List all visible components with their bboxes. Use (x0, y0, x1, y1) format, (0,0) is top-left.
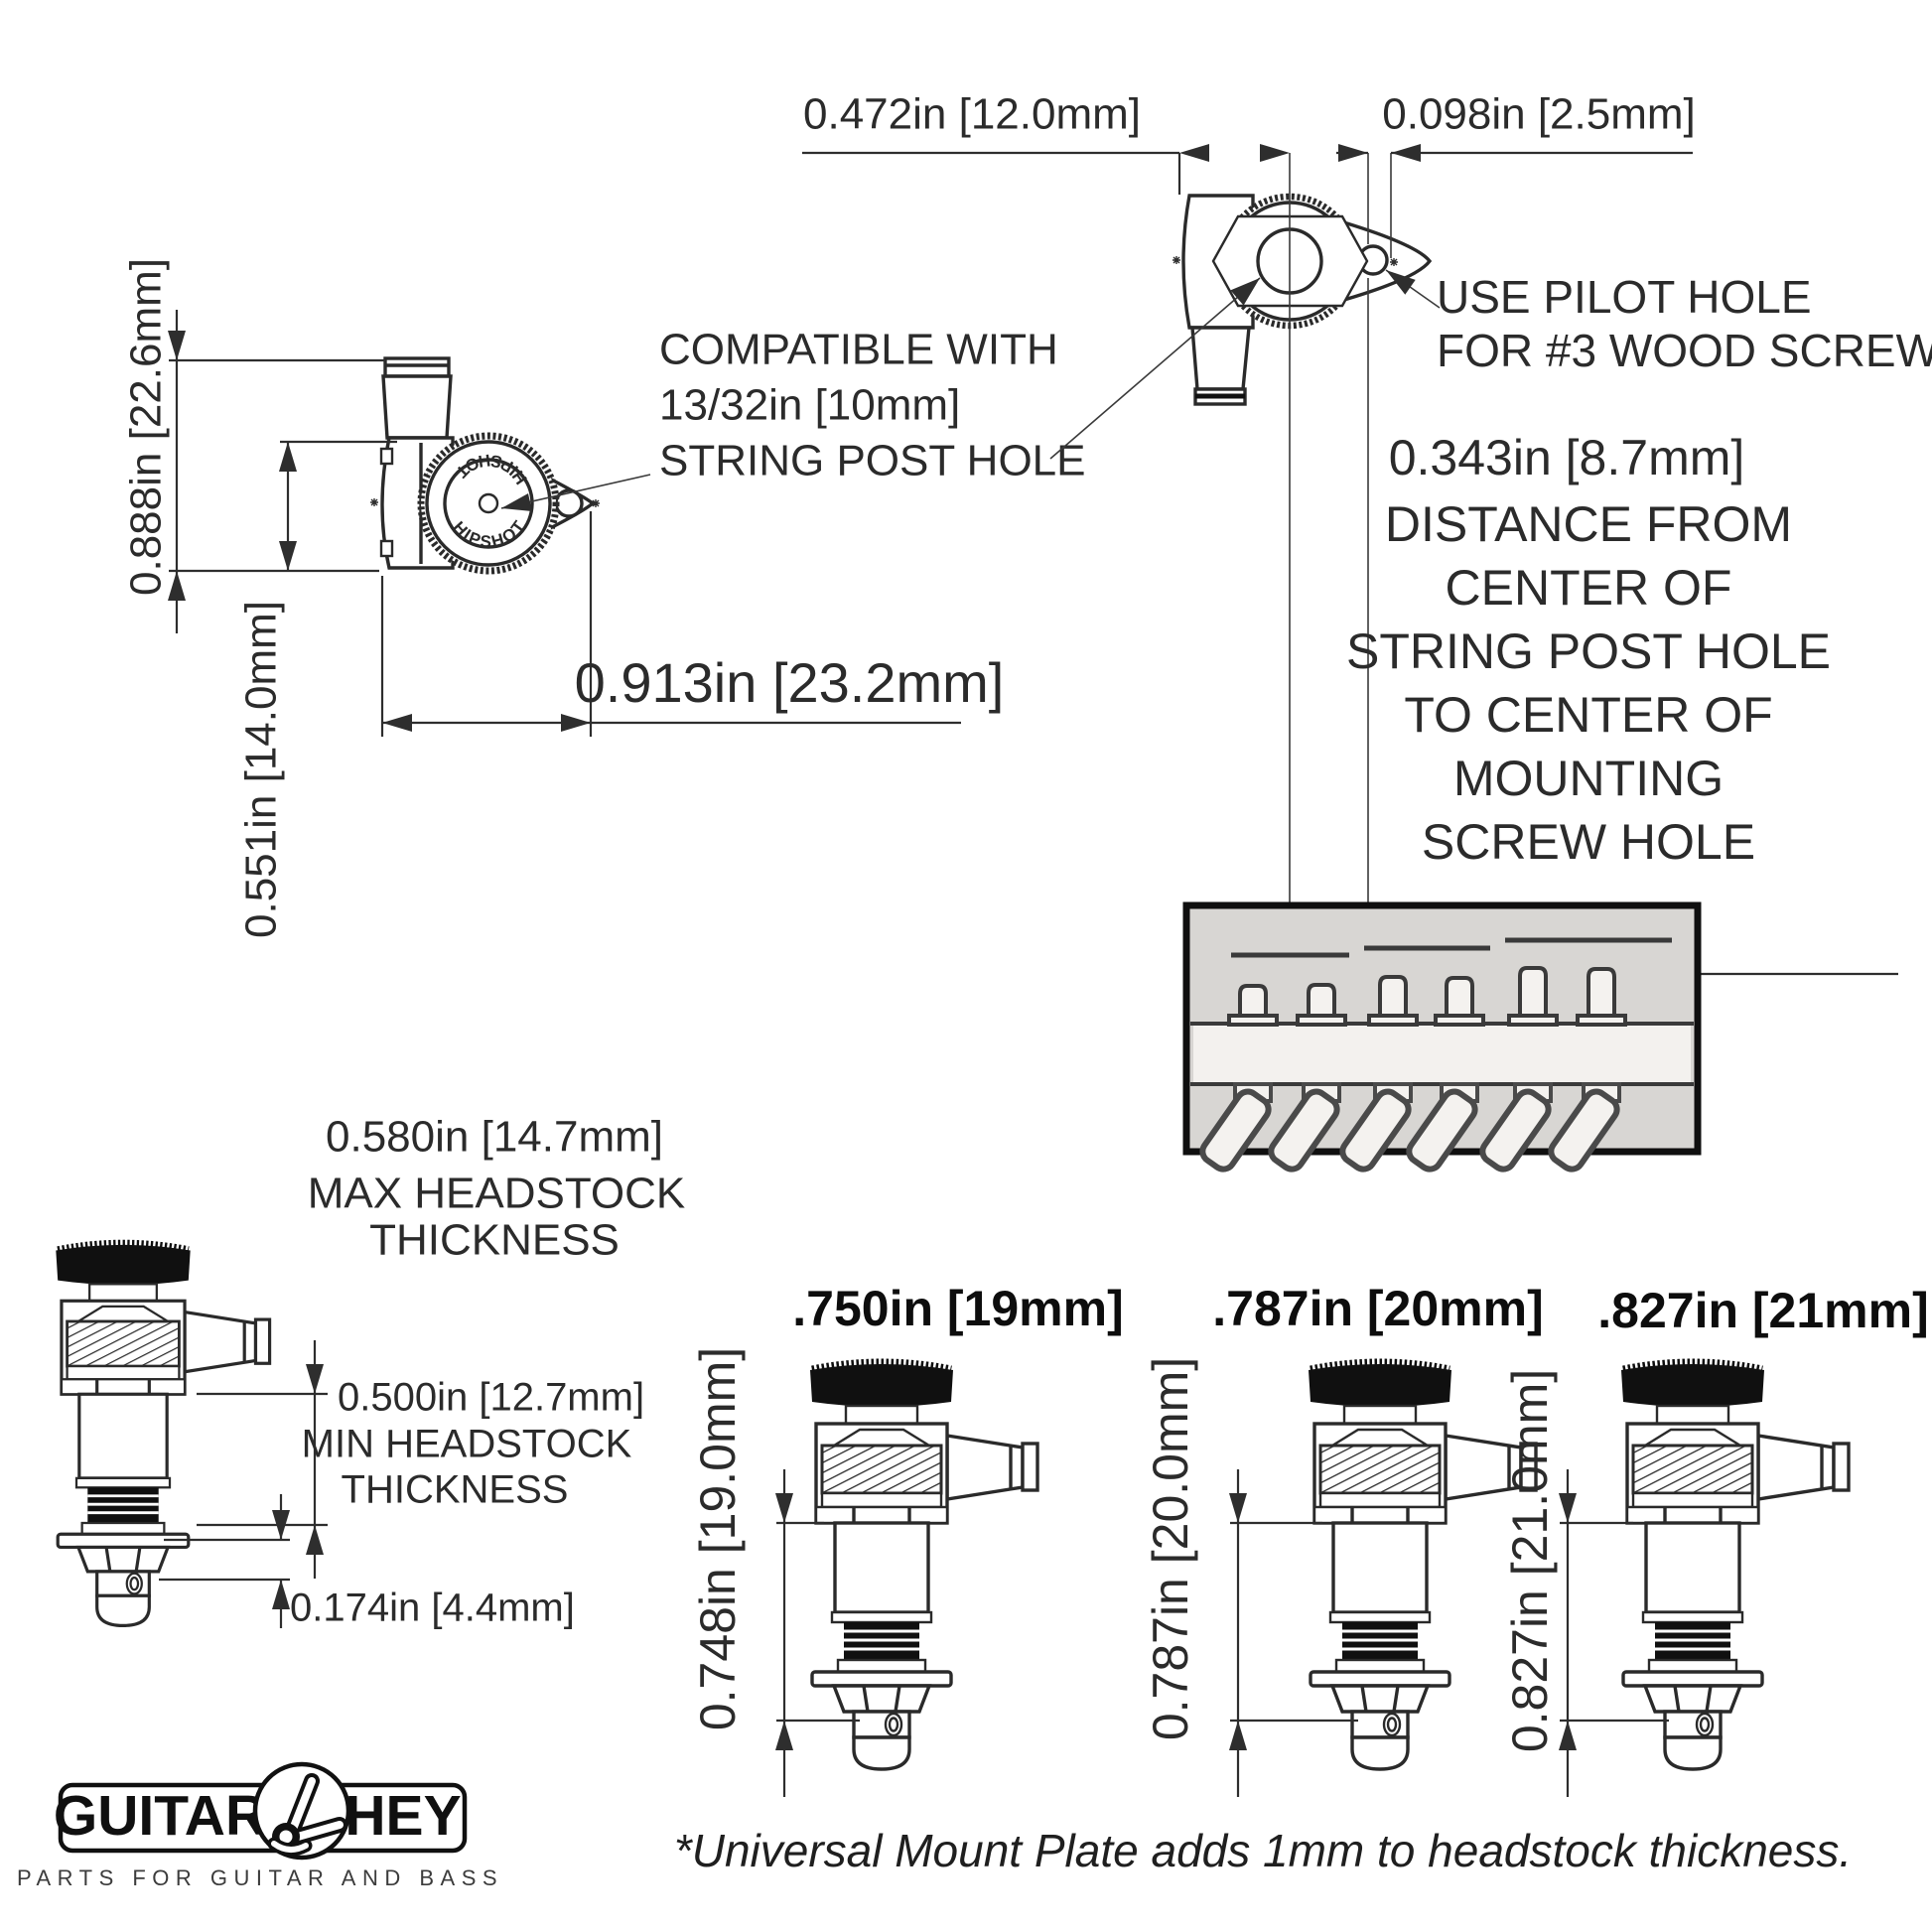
tuner-front-view-19mm (810, 1363, 1037, 1769)
post-title-21mm: .827in [21mm] (1597, 1283, 1928, 1338)
guitar-hey-logo: GUITAR HEY PARTS FOR GUITAR AND BASS (17, 1764, 503, 1890)
logo-text-hey: HEY (345, 1784, 461, 1848)
dim-base-height: 0.551in [14.0mm] (237, 601, 286, 938)
dist-line-4: TO CENTER OF (1404, 687, 1772, 743)
max-line-2: THICKNESS (369, 1216, 620, 1265)
compat-line-3: STRING POST HOLE (659, 437, 1086, 485)
dim-offset: 0.472in [12.0mm] (803, 90, 1141, 139)
spec-sheet: HIPSHOT HIPSHOT HIPSHOT (0, 0, 1932, 1932)
logo-text-guitar: GUITAR (54, 1784, 266, 1848)
dim-total-height: 0.888in [22.6mm] (122, 258, 171, 596)
post-dim-20mm: 0.787in [20.0mm] (1143, 1357, 1198, 1740)
min-thickness-dimensions: 0.500in [12.7mm] MIN HEADSTOCK THICKNESS… (159, 1340, 644, 1630)
side-view-drawing: HIPSHOT HIPSHOT HIPSHOT (370, 358, 600, 571)
dim-pilot: 0.098in [2.5mm] (1382, 90, 1696, 139)
min-dim: 0.500in [12.7mm] (338, 1376, 644, 1420)
dim-width: 0.913in [23.2mm] (575, 651, 1005, 714)
compat-line-1: COMPATIBLE WITH (659, 326, 1058, 374)
post-dim-21mm: 0.827in [21.0mm] (1502, 1369, 1558, 1752)
compat-line-2: 13/32in [10mm] (659, 381, 960, 430)
pilot-line-1: USE PILOT HOLE (1437, 271, 1812, 323)
universal-mount-note: *Universal Mount Plate adds 1mm to heads… (674, 1825, 1852, 1876)
post-title-19mm: .750in [19mm] (792, 1281, 1123, 1336)
post-option-21mm: .827in [21mm] 0.827in [21.0mm] (1502, 1283, 1929, 1797)
min-line-2: THICKNESS (342, 1468, 569, 1512)
post-option-20mm: .787in [20mm] 0.787in [20.0mm] (1143, 1281, 1544, 1797)
headstock-photo-inset (1186, 905, 1698, 1173)
rock-hand-icon (255, 1764, 348, 1858)
post-dim: 0.174in [4.4mm] (290, 1587, 575, 1630)
post-option-19mm: .750in [19mm] 0.748in [19.0mm] (690, 1281, 1124, 1797)
dist-line-6: SCREW HOLE (1422, 814, 1755, 870)
max-thickness-note: 0.580in [14.7mm] MAX HEADSTOCK THICKNESS (308, 1113, 686, 1265)
annotation-distance: 0.343in [8.7mm] DISTANCE FROM CENTER OF … (1346, 430, 1831, 870)
dist-dim: 0.343in [8.7mm] (1389, 430, 1745, 485)
annotation-compatible: COMPATIBLE WITH 13/32in [10mm] STRING PO… (501, 278, 1260, 511)
dist-line-3: STRING POST HOLE (1346, 623, 1831, 679)
tuner-front-view-main (56, 1244, 269, 1625)
logo-tagline: PARTS FOR GUITAR AND BASS (17, 1865, 503, 1890)
max-dim: 0.580in [14.7mm] (326, 1113, 663, 1162)
dist-line-5: MOUNTING (1453, 751, 1724, 806)
diagram-canvas: HIPSHOT HIPSHOT HIPSHOT (0, 0, 1932, 1932)
post-dim-19mm: 0.748in [19.0mm] (690, 1347, 746, 1730)
post-title-20mm: .787in [20mm] (1212, 1281, 1543, 1336)
dist-line-2: CENTER OF (1446, 560, 1732, 616)
pilot-line-2: FOR #3 WOOD SCREW (1437, 325, 1932, 376)
dist-line-1: DISTANCE FROM (1385, 496, 1792, 552)
min-line-1: MIN HEADSTOCK (302, 1423, 632, 1466)
tuner-front-view-21mm (1621, 1363, 1849, 1769)
max-line-1: MAX HEADSTOCK (308, 1170, 686, 1218)
annotation-pilot: USE PILOT HOLE FOR #3 WOOD SCREW (1386, 270, 1932, 376)
